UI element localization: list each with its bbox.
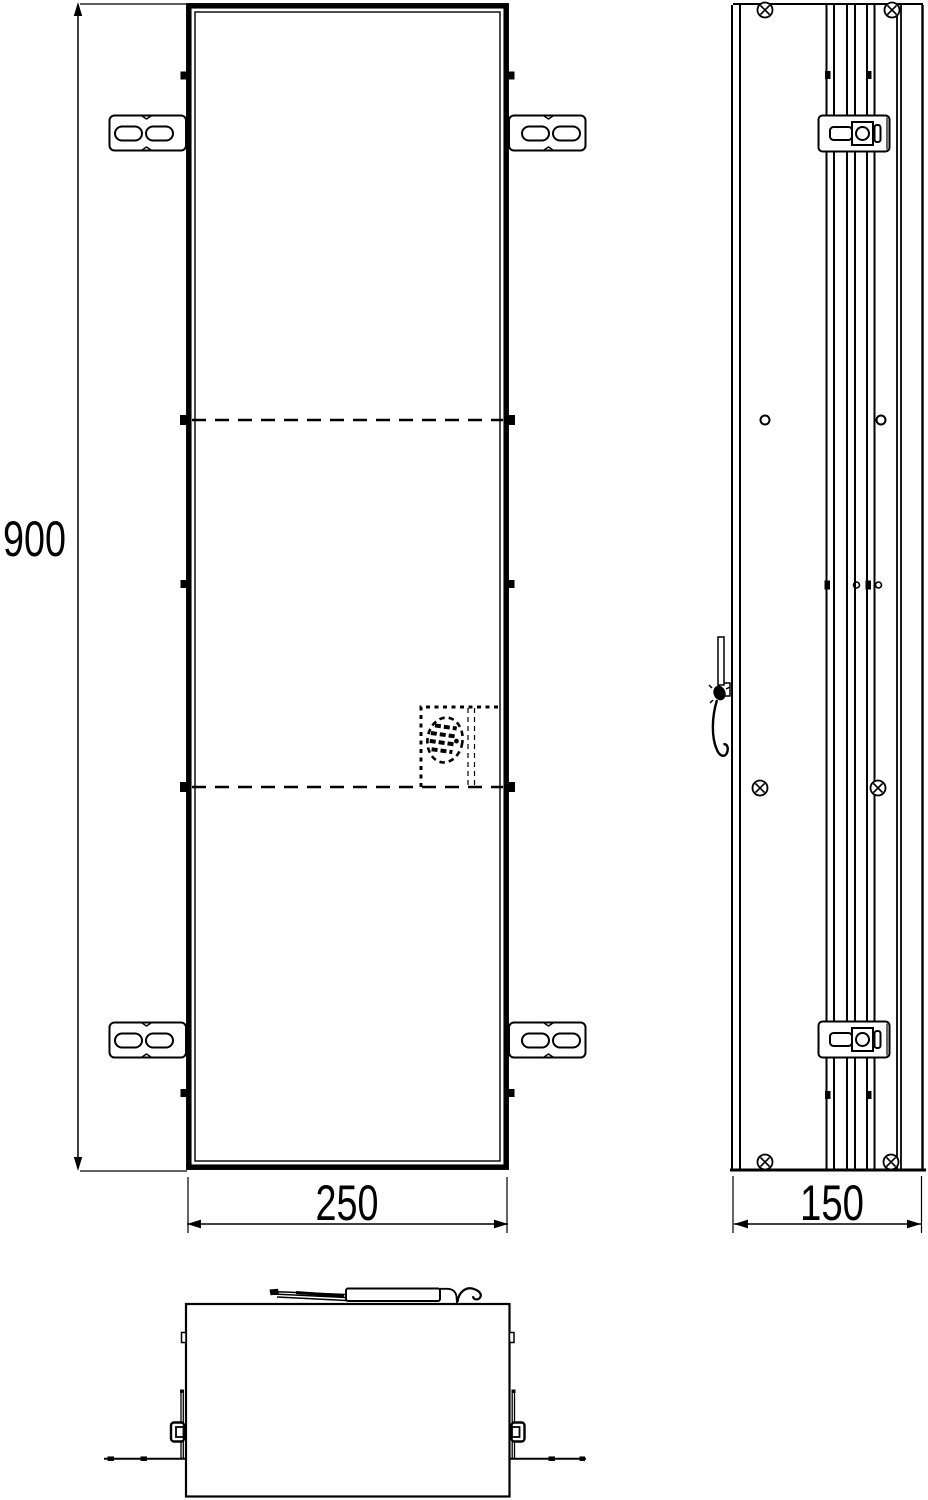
depth-dimension: 150 bbox=[733, 1175, 922, 1233]
mounting-bracket-bottom-left bbox=[110, 1023, 187, 1058]
side-lug bbox=[182, 1333, 187, 1343]
drawing-canvas: 900 250 150 bbox=[0, 0, 928, 1500]
side-bracket-clamp-top bbox=[819, 116, 890, 152]
door-damper-arm bbox=[270, 1288, 481, 1303]
technical-drawing: 900 250 150 bbox=[0, 0, 928, 1500]
cable-icon bbox=[709, 637, 730, 756]
screw-icon bbox=[758, 3, 773, 18]
plan-flange-left bbox=[104, 1390, 186, 1459]
arrow-left-icon bbox=[734, 1220, 748, 1229]
mounting-bracket-top-right bbox=[509, 116, 586, 151]
plan-view bbox=[104, 1288, 586, 1496]
mounting-bracket-top-left bbox=[110, 116, 187, 151]
screw-icon bbox=[871, 781, 886, 796]
hole-icon bbox=[877, 416, 886, 425]
depth-dim-label: 150 bbox=[800, 1175, 864, 1231]
height-dimension: 900 bbox=[3, 2, 187, 1171]
side-lug bbox=[510, 1333, 515, 1343]
width-dimension: 250 bbox=[187, 1175, 508, 1233]
plan-flange-right bbox=[510, 1390, 586, 1459]
front-frame bbox=[189, 6, 506, 1167]
front-view bbox=[110, 6, 586, 1167]
arrow-right-icon bbox=[907, 1220, 921, 1229]
damper-hook bbox=[458, 1288, 481, 1302]
height-dim-label: 900 bbox=[3, 511, 66, 567]
screw-icon bbox=[758, 1155, 773, 1170]
screw-icon bbox=[885, 3, 900, 18]
width-dim-label: 250 bbox=[316, 1175, 379, 1231]
arrow-down-icon bbox=[74, 1157, 82, 1171]
screw-icon bbox=[884, 1155, 899, 1170]
arrow-left-icon bbox=[187, 1220, 201, 1229]
side-bracket-clamp-bottom bbox=[819, 1022, 890, 1058]
arrow-right-icon bbox=[494, 1220, 508, 1229]
hole-icon bbox=[761, 416, 770, 425]
plan-body bbox=[186, 1304, 510, 1497]
screw-icon bbox=[753, 781, 768, 796]
mounting-bracket-bottom-right bbox=[509, 1023, 586, 1058]
side-view bbox=[709, 3, 926, 1171]
